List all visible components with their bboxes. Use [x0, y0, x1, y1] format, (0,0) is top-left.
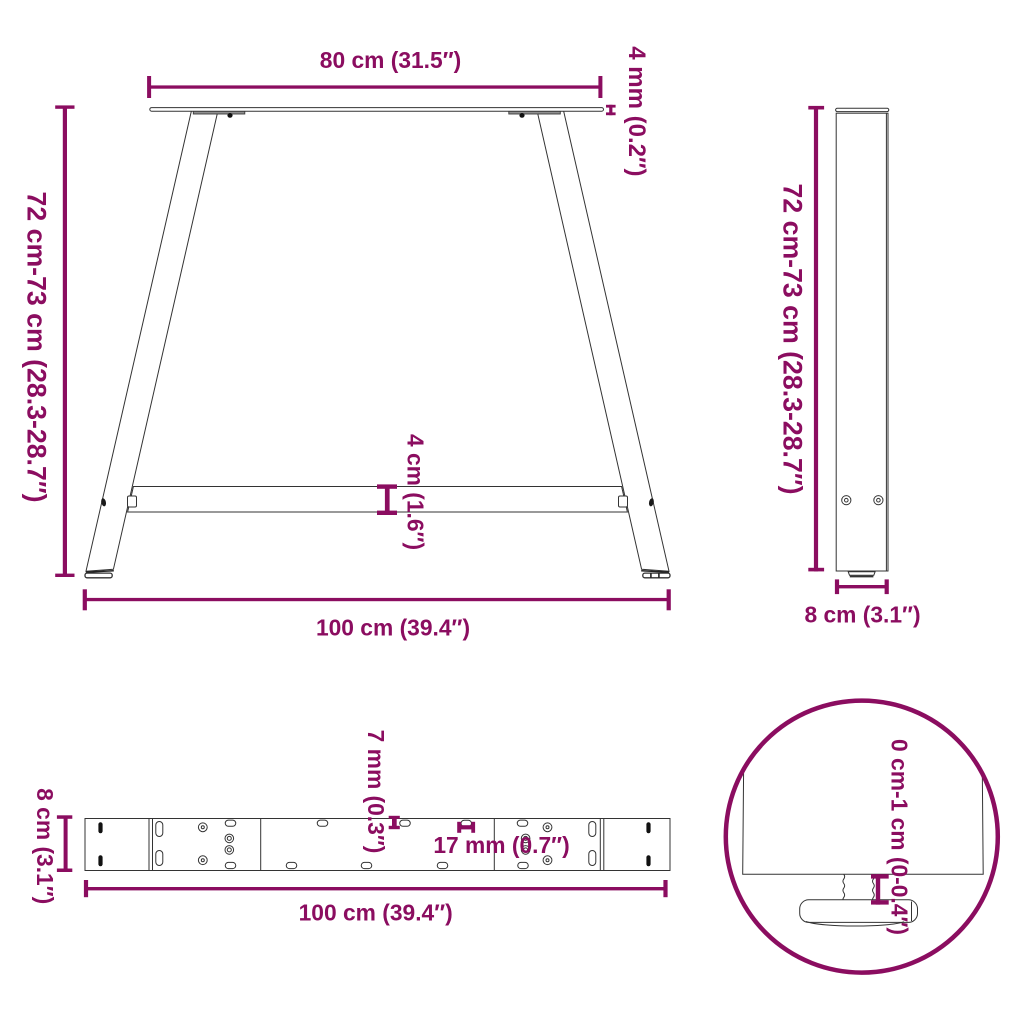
svg-text:8 cm (3.1″): 8 cm (3.1″)	[804, 602, 920, 628]
svg-text:4 mm (0.2″): 4 mm (0.2″)	[623, 46, 650, 176]
svg-text:100 cm (39.4″): 100 cm (39.4″)	[299, 899, 453, 925]
svg-text:4 cm (1.6″): 4 cm (1.6″)	[403, 434, 429, 550]
svg-text:72 cm-73 cm (28.3-28.7″): 72 cm-73 cm (28.3-28.7″)	[22, 192, 52, 503]
svg-text:0 cm-1 cm (0-0.4″): 0 cm-1 cm (0-0.4″)	[887, 739, 913, 935]
svg-text:7 mm (0.3″): 7 mm (0.3″)	[363, 730, 389, 854]
svg-text:72 cm-73 cm (28.3-28.7″): 72 cm-73 cm (28.3-28.7″)	[778, 184, 808, 495]
svg-text:80 cm (31.5″): 80 cm (31.5″)	[320, 47, 461, 73]
svg-text:100 cm (39.4″): 100 cm (39.4″)	[316, 614, 470, 640]
svg-text:8 cm (3.1″): 8 cm (3.1″)	[32, 788, 58, 904]
svg-text:17 mm (0.7″): 17 mm (0.7″)	[433, 832, 569, 858]
